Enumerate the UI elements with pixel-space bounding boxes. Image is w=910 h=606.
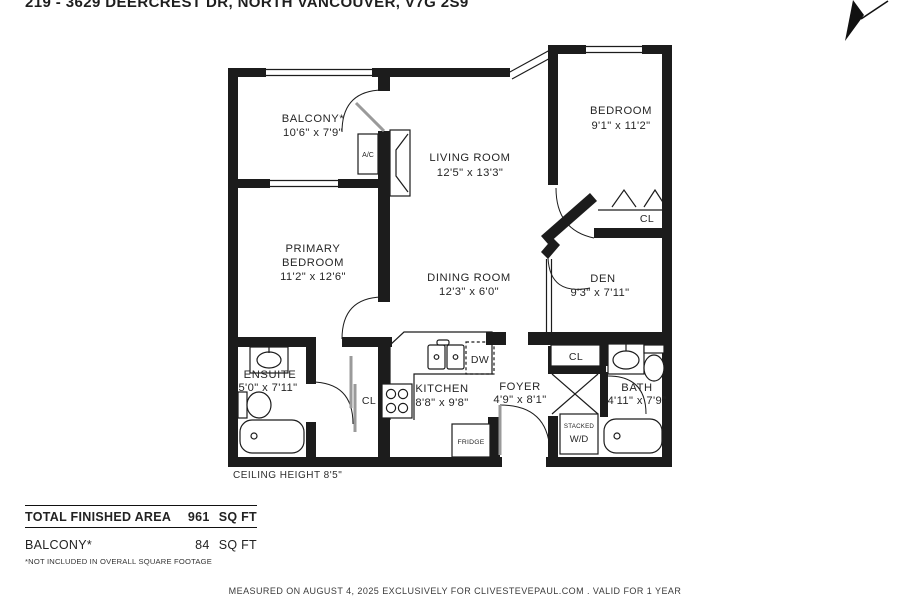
bedroom-closet-label: CL — [640, 213, 654, 225]
stove — [382, 384, 412, 418]
primary-closet-label: CL — [362, 395, 376, 407]
wd-label: W/D — [570, 434, 589, 445]
bath-dims: 4'11" x 7'9" — [607, 395, 666, 407]
balcony-area-label: BALCONY* — [25, 538, 92, 552]
den-dims: 9'3" x 7'11" — [570, 287, 629, 299]
area-summary: TOTAL FINISHED AREA 961 SQ FT BALCONY* 8… — [25, 505, 257, 566]
total-area-unit: SQ FT — [219, 510, 257, 524]
bedroom-window — [586, 47, 642, 53]
laundry-bifold-doors — [552, 374, 598, 414]
balcony-window — [266, 70, 372, 76]
balcony-area-row: BALCONY* 84 SQ FT — [25, 534, 257, 555]
ensuite-label: ENSUITE — [244, 369, 297, 381]
bedroom-label: BEDROOM — [590, 105, 652, 117]
primary-bedroom-window — [270, 181, 338, 187]
stacked-label: STACKED — [564, 423, 594, 430]
ensuite-dims: 5'0" x 7'11" — [238, 382, 297, 394]
bath-tub — [604, 419, 662, 453]
living-dims: 12'5" x 13'3" — [437, 167, 504, 179]
ensuite-toilet — [238, 392, 271, 418]
primary-label-1: PRIMARY — [286, 243, 341, 255]
bedroom-closet-bifold — [598, 190, 666, 210]
dining-label: DINING ROOM — [427, 272, 511, 284]
measurement-footer: MEASURED ON AUGUST 4, 2025 EXCLUSIVELY F… — [0, 586, 910, 596]
laundry-closet-label: CL — [569, 351, 583, 363]
dining-dims: 12'3" x 6'0" — [439, 286, 499, 298]
summary-rule-bottom — [25, 527, 257, 528]
fireplace — [390, 130, 410, 196]
ceiling-height-note: CEILING HEIGHT 8'5" — [233, 470, 342, 481]
foyer-label: FOYER — [499, 381, 541, 393]
bath-toilet — [644, 345, 664, 381]
ensuite-door-swing — [311, 382, 353, 424]
primary-dims: 11'2" x 12'6" — [280, 271, 346, 283]
balcony-door-panel — [356, 103, 384, 131]
fridge-label: FRIDGE — [458, 439, 485, 446]
north-arrow-icon — [845, 0, 888, 41]
bedroom-dims: 9'1" x 11'2" — [591, 120, 650, 132]
angled-window — [508, 50, 554, 79]
kitchen-dims: 8'8" x 9'8" — [415, 397, 468, 409]
kitchen-label: KITCHEN — [415, 383, 468, 395]
ac-label: A/C — [362, 152, 374, 159]
bath-label: BATH — [621, 382, 652, 394]
bath-sink — [608, 344, 644, 374]
living-label: LIVING ROOM — [429, 152, 510, 164]
ensuite-tub — [240, 420, 304, 453]
balcony-label: BALCONY* — [282, 113, 345, 125]
den-door-swing — [548, 258, 590, 289]
total-area-value: 961 — [188, 510, 210, 524]
primary-label-2: BEDROOM — [282, 257, 344, 269]
total-area-label: TOTAL FINISHED AREA — [25, 510, 171, 524]
total-area-row: TOTAL FINISHED AREA 961 SQ FT — [25, 506, 257, 527]
primary-door-swing — [342, 297, 384, 339]
dw-label: DW — [471, 354, 489, 366]
den-label: DEN — [590, 273, 615, 285]
entry-door-swing — [500, 405, 550, 455]
kitchen-sink — [428, 340, 464, 369]
balcony-area-unit: SQ FT — [219, 538, 257, 552]
foyer-dims: 4'9" x 8'1" — [493, 394, 546, 406]
balcony-dims: 10'6" x 7'9" — [283, 127, 343, 139]
summary-footnote: *NOT INCLUDED IN OVERALL SQUARE FOOTAGE — [25, 557, 257, 566]
balcony-area-value: 84 — [195, 538, 210, 552]
